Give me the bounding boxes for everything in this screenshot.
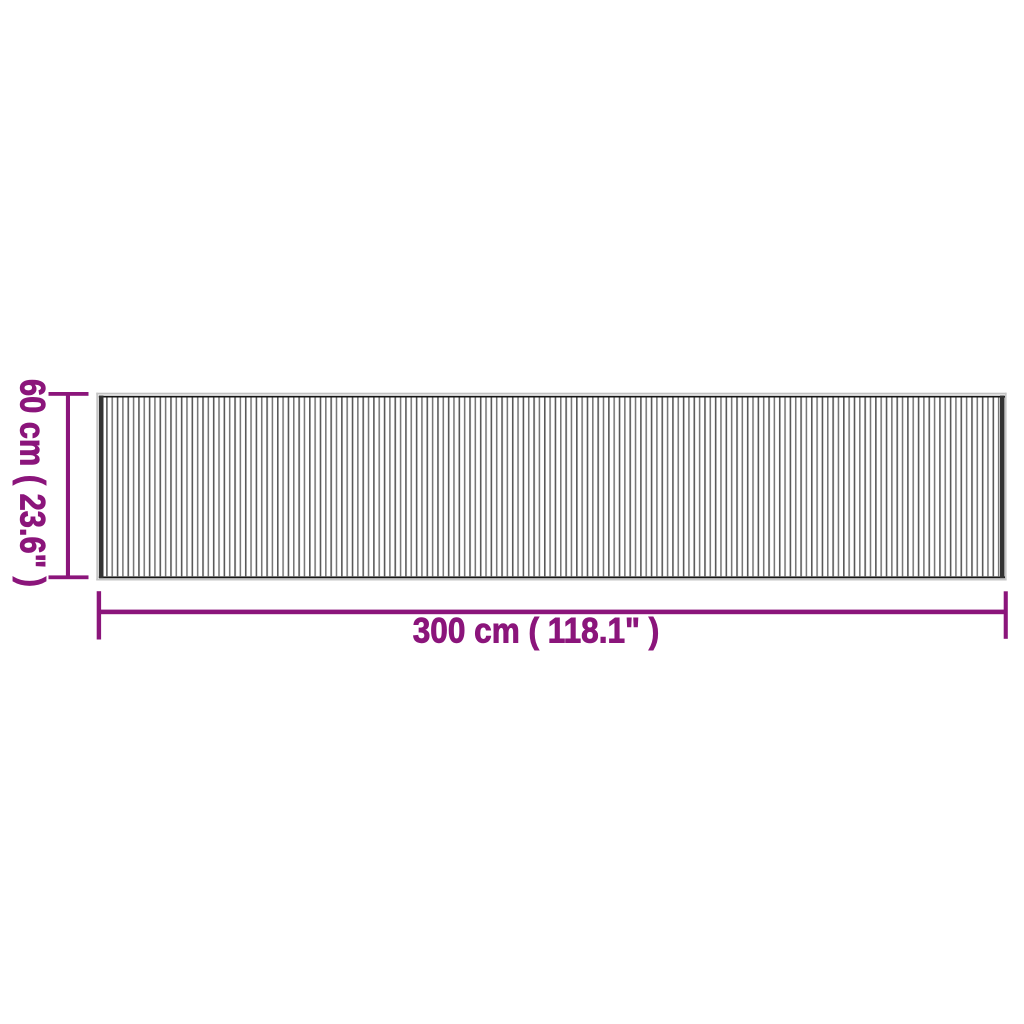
svg-text:60 cm ( 23.6" ): 60 cm ( 23.6" ) <box>13 379 53 587</box>
svg-text:300 cm ( 118.1" ): 300 cm ( 118.1" ) <box>413 611 660 651</box>
